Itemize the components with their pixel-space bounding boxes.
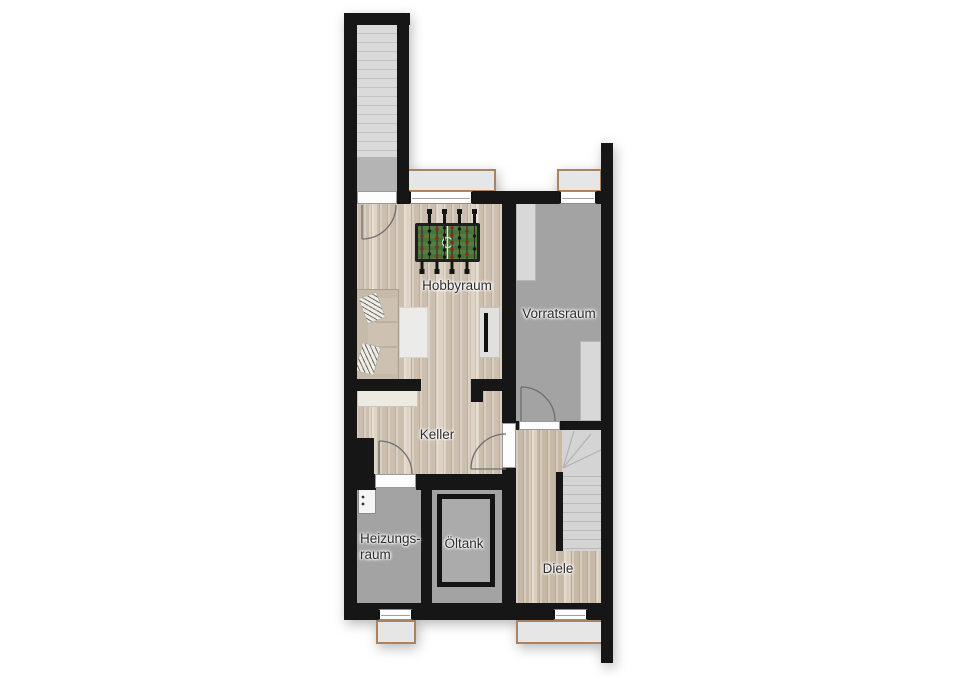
chimney [354,438,374,475]
wall-right-outer [601,143,613,663]
door-sill-diele [502,423,516,468]
room-label-oeltank: Öltank [424,536,504,552]
wall-divider-vertical [502,468,516,603]
room-label-keller: Keller [397,427,477,443]
window [559,191,597,204]
room-label-diele: Diele [518,561,598,577]
window [553,609,588,620]
wall-top [473,191,561,204]
wall-hobby-keller-left [356,379,421,391]
storage-shelf [516,203,536,281]
stair-landing [356,157,397,191]
window [378,609,413,620]
light-well [407,169,496,192]
wall-hobby-keller-right [471,379,502,391]
storage-shelf [580,341,601,421]
floorplan-image: Hobbyraum Vorratsraum Keller Heizungs- r… [0,0,960,679]
light-well [557,169,602,192]
foosball-field [418,226,477,259]
boiler [358,489,376,514]
tv [484,313,488,352]
door-sill-heizungsraum [375,474,416,488]
wall-left-outer [344,13,357,620]
window [409,191,473,204]
wall-stairshaft-right [397,13,409,204]
wall-keller-bottom-left [356,474,376,490]
tv-sideboard [479,307,500,358]
room-label-heizungsraum: Heizungs- raum [360,531,432,563]
room-label-vorratsraum: Vorratsraum [509,306,609,322]
exterior-stairs [356,25,397,157]
light-well [516,620,603,644]
door-sill-vorratsraum [519,421,560,430]
light-well [376,620,416,644]
door-sill-landing [357,191,397,204]
rug [399,307,428,358]
basement-floorplan: Hobbyraum Vorratsraum Keller Heizungs- r… [0,0,960,679]
stair-treads [562,468,601,551]
room-label-hobbyraum: Hobbyraum [407,278,507,294]
wall-stub [471,391,483,402]
wall-stair-side [556,472,563,551]
